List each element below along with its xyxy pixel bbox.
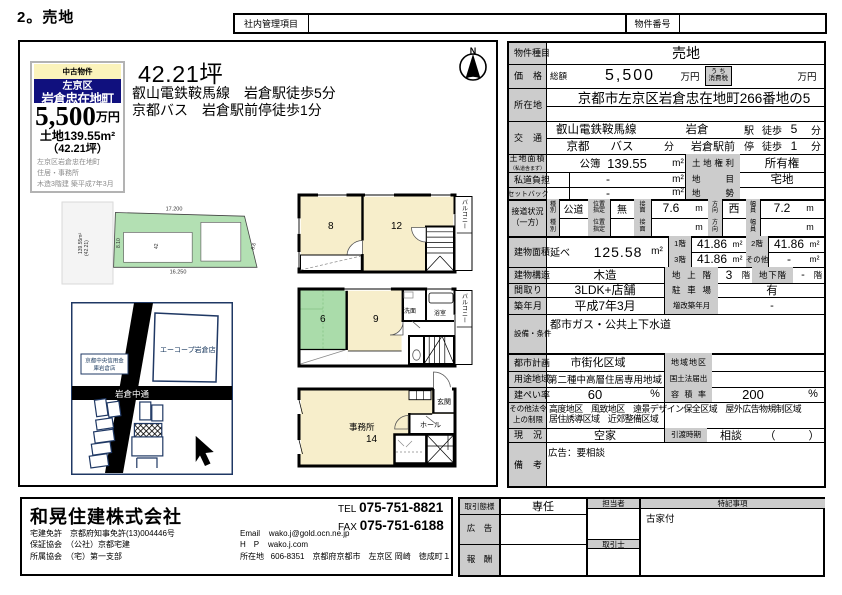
svg-text:事務所: 事務所 xyxy=(349,422,375,432)
svg-text:8.10: 8.10 xyxy=(116,238,122,248)
svg-text:庫岩倉店: 庫岩倉店 xyxy=(93,364,116,372)
svg-text:エーコープ岩倉店: エーコープ岩倉店 xyxy=(160,345,216,354)
svg-text:17.200: 17.200 xyxy=(166,207,183,213)
svg-text:8: 8 xyxy=(328,221,334,232)
svg-text:ホール: ホール xyxy=(420,421,441,429)
svg-text:(42.21): (42.21) xyxy=(84,240,90,256)
svg-text:京都中央信用金: 京都中央信用金 xyxy=(85,357,124,365)
svg-text:6: 6 xyxy=(320,314,326,325)
svg-text:8.6: 8.6 xyxy=(250,242,258,250)
svg-text:バルコニー: バルコニー xyxy=(461,199,468,229)
svg-text:バルコニー: バルコニー xyxy=(461,293,468,323)
svg-text:岩倉中通: 岩倉中通 xyxy=(115,389,150,399)
svg-text:浴室: 浴室 xyxy=(434,309,446,317)
svg-text:玄関: 玄関 xyxy=(437,397,451,406)
svg-text:9: 9 xyxy=(373,314,379,325)
svg-text:16.250: 16.250 xyxy=(170,270,187,276)
svg-text:洗面: 洗面 xyxy=(404,307,416,315)
svg-text:42: 42 xyxy=(154,243,160,249)
svg-text:12: 12 xyxy=(391,221,403,232)
svg-text:14: 14 xyxy=(366,434,378,445)
